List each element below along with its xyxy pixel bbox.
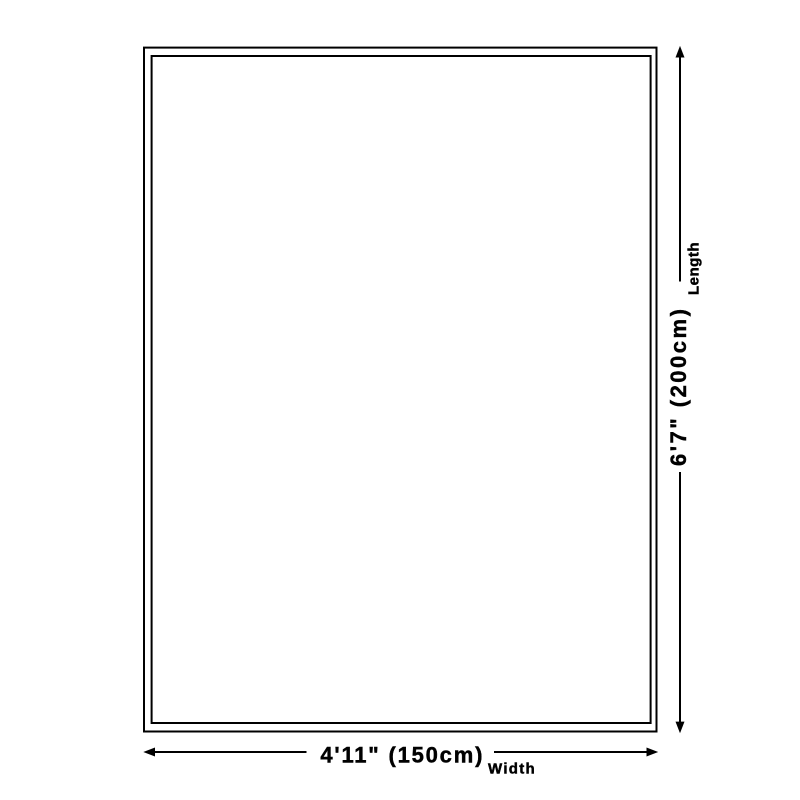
svg-text:Length: Length: [686, 242, 703, 295]
svg-text:4'11" (150cm): 4'11" (150cm): [320, 743, 484, 768]
svg-text:Width: Width: [488, 761, 536, 778]
svg-text:6'7" (200cm): 6'7" (200cm): [666, 307, 691, 466]
